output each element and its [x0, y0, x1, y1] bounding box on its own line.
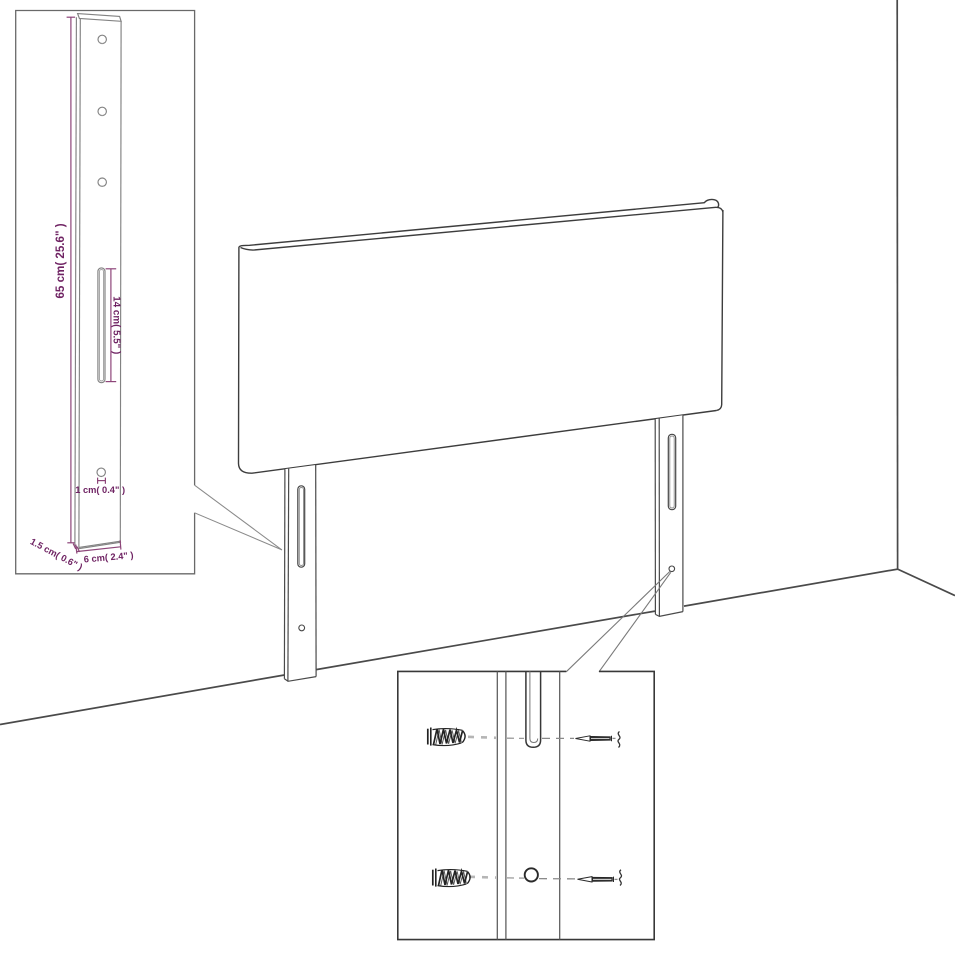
svg-text:65 cm( 25.6" ): 65 cm( 25.6" ): [54, 223, 67, 298]
svg-text:14 cm( 5.5" ): 14 cm( 5.5" ): [111, 296, 122, 354]
svg-text:1 cm( 0.4" ): 1 cm( 0.4" ): [75, 485, 125, 495]
